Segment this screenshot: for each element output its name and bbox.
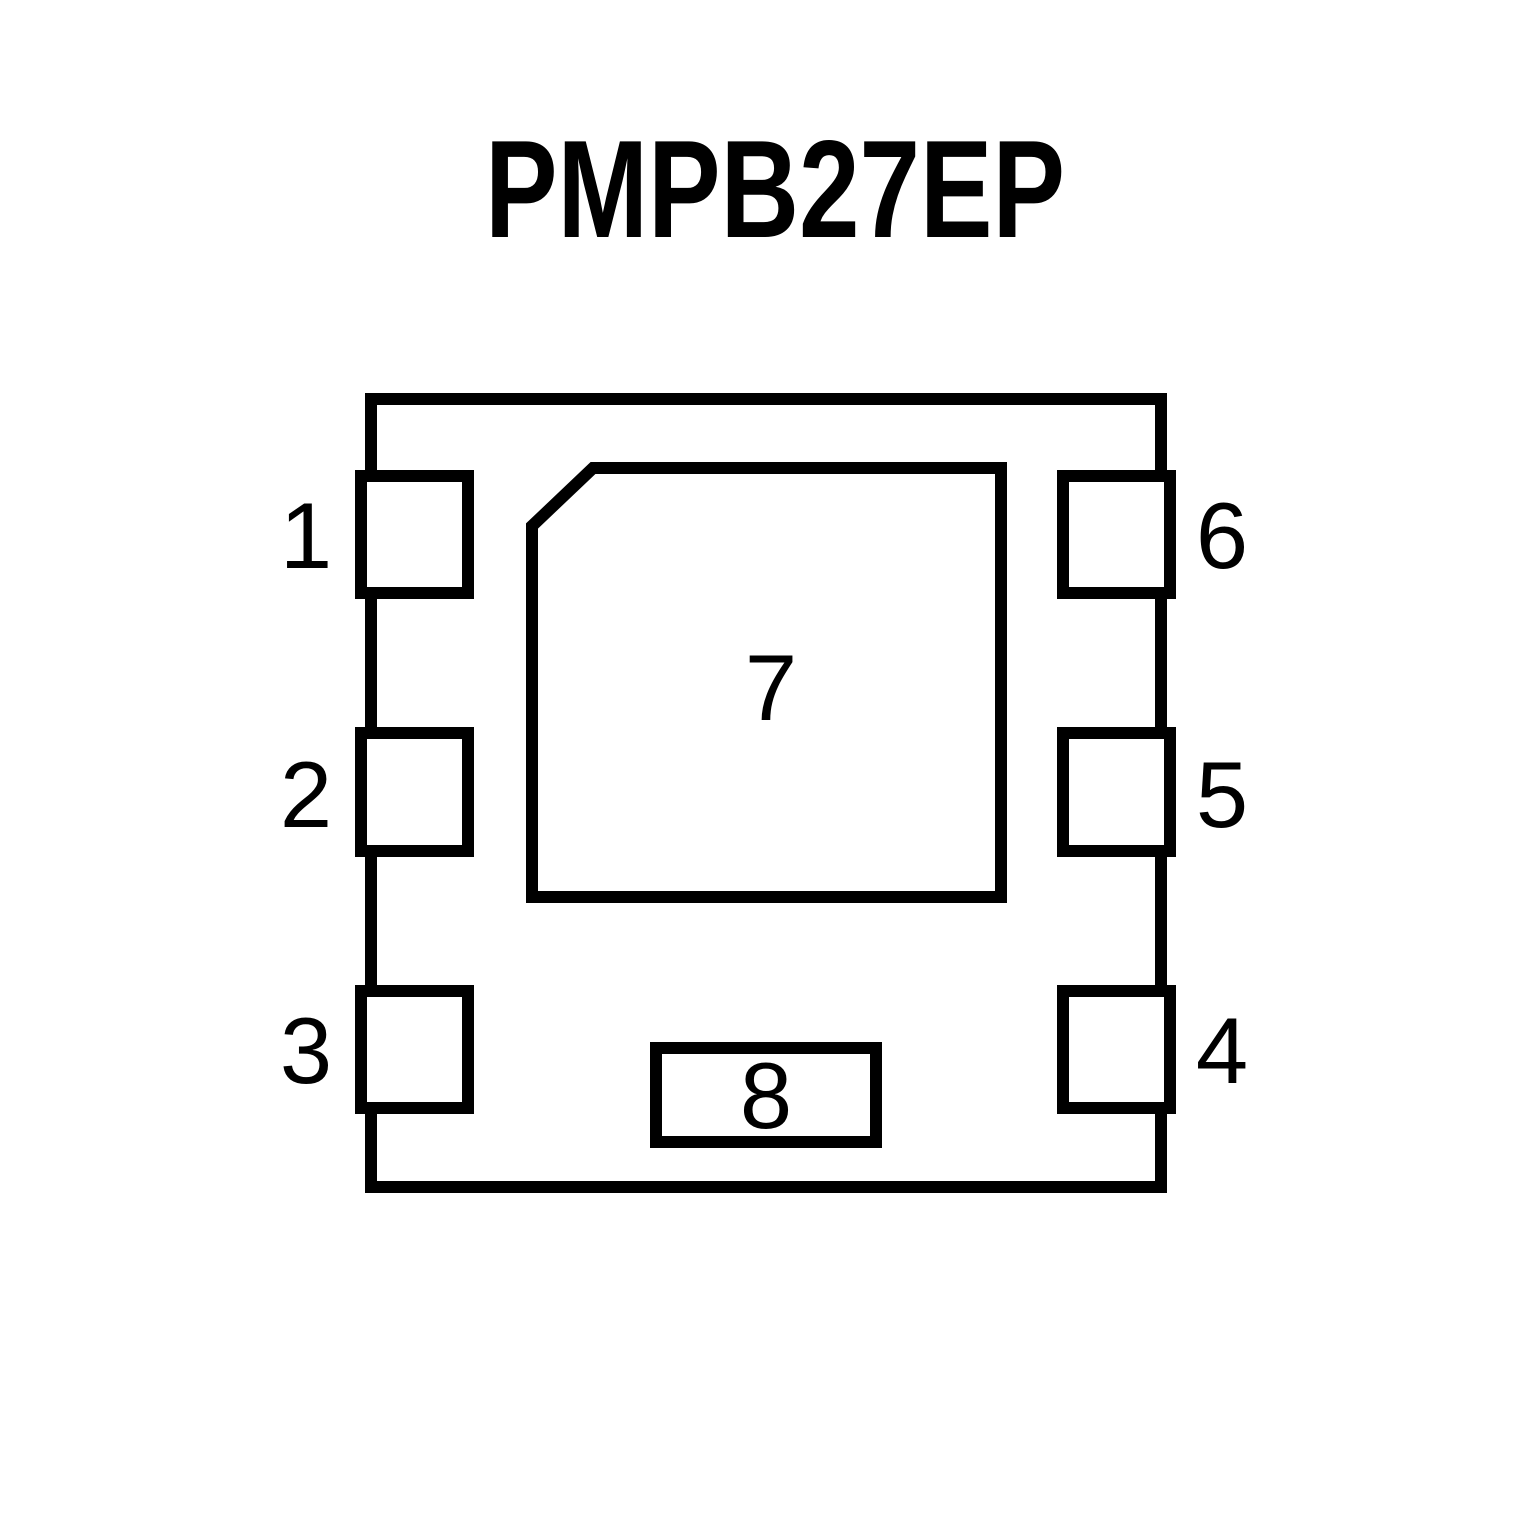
pin-4-pad xyxy=(1063,991,1170,1108)
pad-8-label: 8 xyxy=(740,1043,792,1148)
pin-2-label: 2 xyxy=(280,742,332,847)
pin-1-pad xyxy=(361,476,468,593)
pin-5-label: 5 xyxy=(1196,742,1248,847)
pin-3-label: 3 xyxy=(280,998,332,1103)
pin-5-pad xyxy=(1063,733,1170,851)
page-title: PMPB27EP xyxy=(485,112,1065,267)
pin-6-pad xyxy=(1063,476,1170,593)
pin-1-label: 1 xyxy=(280,483,332,588)
pad-7-label: 7 xyxy=(745,635,797,740)
pin-4-label: 4 xyxy=(1196,998,1248,1103)
pin-2-pad xyxy=(361,733,468,851)
pin-3-pad xyxy=(361,991,468,1108)
pin-6-label: 6 xyxy=(1196,483,1248,588)
pinout-diagram: PMPB27EP 1 2 3 6 5 4 7 8 xyxy=(0,0,1535,1535)
